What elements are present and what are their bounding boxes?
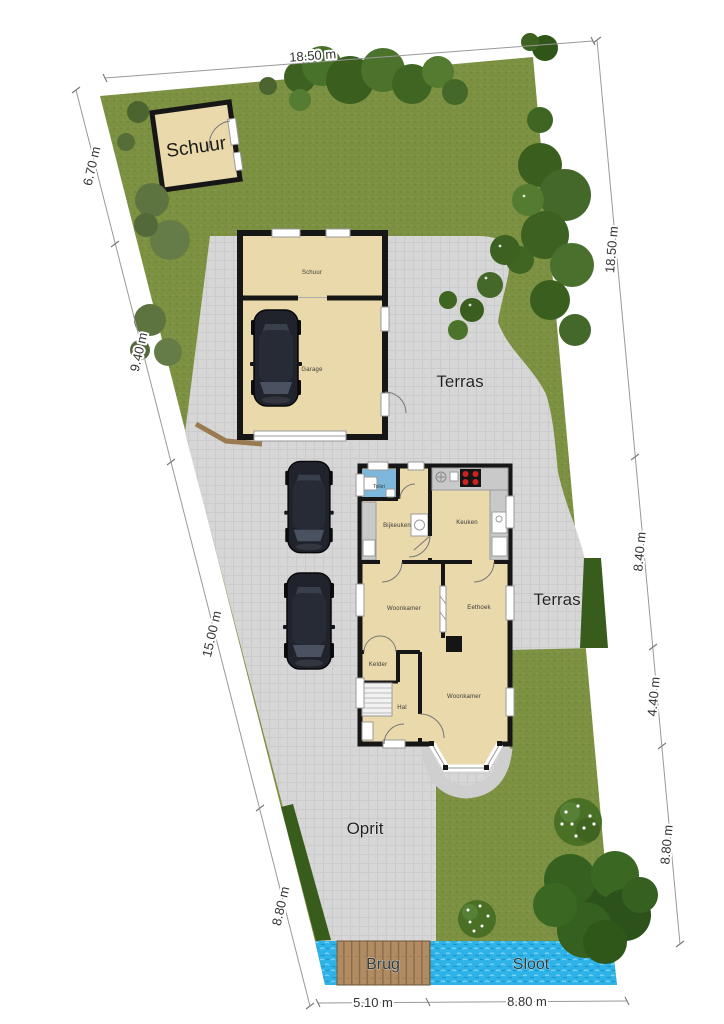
car-in-garage [250,310,302,406]
room-label-hal: Hal [397,705,407,711]
room-label-woonkamer-front: Woonkamer [447,694,481,700]
room-label-schuur: Schuur [302,270,322,276]
oprit-label: Oprit [347,819,384,838]
room-label-woonkamer-mid: Woonkamer [387,606,421,612]
schuur-building: Schuur [152,101,244,190]
car-on-driveway-1 [284,461,333,552]
chimney [446,636,462,652]
stove [460,469,481,487]
brug-label: Brug [366,956,400,973]
dim-bottom-1: 5.10 m [353,995,393,1010]
sloot-label: Sloot [513,956,550,973]
dim-bottom-2: 8.80 m [507,994,547,1009]
terras-lower-label: Terras [533,590,580,609]
room-label-garage: Garage [301,367,323,373]
washing-machine [411,514,428,536]
room-label-bijkeuken: Bijkeuken [383,523,411,529]
flower-bush-bottom [458,900,496,938]
toilet-bowl [386,489,395,497]
terras-upper-label: Terras [436,372,483,391]
staircase [362,683,392,716]
site-plan-floorplan: Schuur Garage [0,0,724,1024]
flower-bush-right [554,798,602,846]
room-label-kelder: Kelder [369,662,388,668]
car-on-driveway-2 [283,573,335,669]
kitchen-sink [492,512,507,533]
room-label-keuken: Keuken [456,520,478,526]
site-plan-page: Schuur Garage [0,0,724,1024]
room-label-eethoek: Eethoek [467,605,491,611]
main-house: Toilet Bijkeuken Keuken Woonkamer Eethoe… [356,462,514,770]
garage-building: Schuur Garage [240,229,406,441]
room-label-toilet: Toilet [373,484,385,490]
